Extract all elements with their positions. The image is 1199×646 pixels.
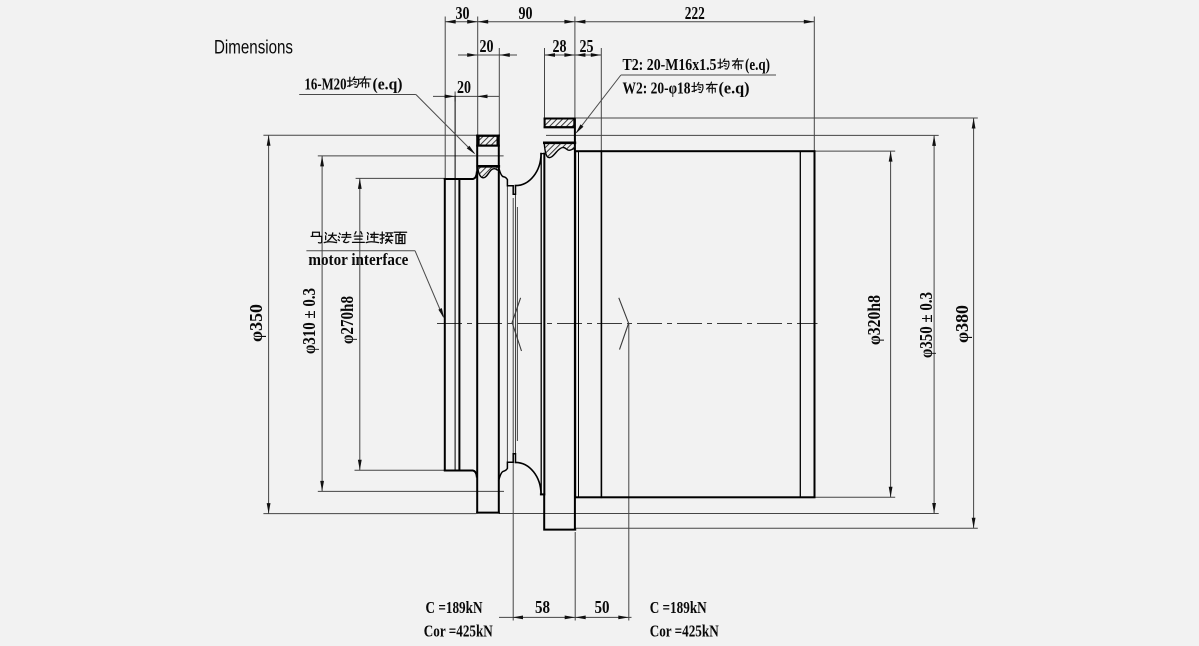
svg-text:222: 222 [685, 3, 705, 23]
svg-text:25: 25 [580, 36, 594, 56]
svg-text:motor interface: motor interface [308, 250, 408, 269]
svg-text:58: 58 [535, 597, 550, 617]
svg-text:20: 20 [480, 36, 494, 56]
svg-text:φ310 ± 0.3: φ310 ± 0.3 [299, 288, 319, 354]
svg-text:φ380: φ380 [952, 305, 972, 343]
svg-text:50: 50 [595, 597, 610, 617]
svg-text:W2: 20-φ18: W2: 20-φ18 [623, 79, 691, 98]
svg-text:(e.q): (e.q) [745, 55, 770, 74]
svg-text:T2: 20-M16x1.5: T2: 20-M16x1.5 [623, 55, 717, 74]
svg-text:Cor =425kN: Cor =425kN [650, 622, 720, 641]
svg-text:Dimensions: Dimensions [214, 38, 293, 59]
svg-text:28: 28 [553, 36, 567, 56]
svg-text:φ350 ± 0.3: φ350 ± 0.3 [916, 292, 936, 358]
svg-text:φ350: φ350 [246, 304, 266, 342]
svg-text:C =189kN: C =189kN [650, 598, 708, 617]
svg-text:Cor =425kN: Cor =425kN [424, 622, 494, 641]
svg-text:(e.q): (e.q) [373, 75, 403, 94]
svg-text:30: 30 [456, 3, 470, 23]
svg-text:90: 90 [519, 3, 533, 23]
svg-text:C =189kN: C =189kN [426, 598, 484, 617]
svg-text:(e.q): (e.q) [719, 79, 750, 98]
svg-text:16-M20: 16-M20 [305, 75, 347, 94]
svg-text:20: 20 [457, 77, 471, 97]
svg-text:φ320h8: φ320h8 [864, 295, 884, 345]
svg-text:φ270h8: φ270h8 [337, 296, 357, 344]
